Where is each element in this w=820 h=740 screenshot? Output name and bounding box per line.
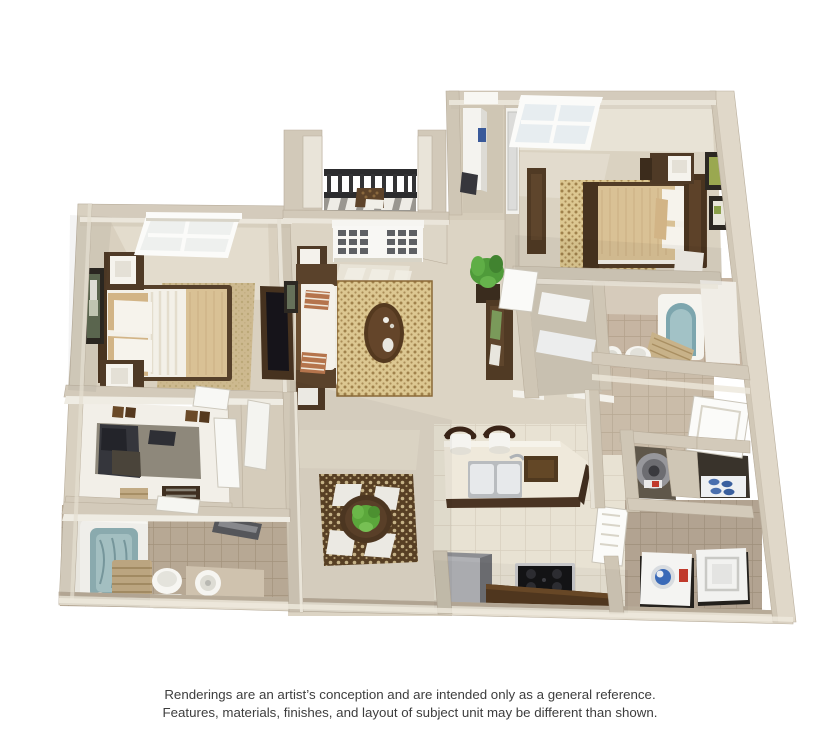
svg-text:Features, materials, finishes,: Features, materials, finishes, and layou…	[163, 705, 658, 720]
svg-text:Renderings are an artist’s con: Renderings are an artist’s conception an…	[164, 687, 655, 702]
